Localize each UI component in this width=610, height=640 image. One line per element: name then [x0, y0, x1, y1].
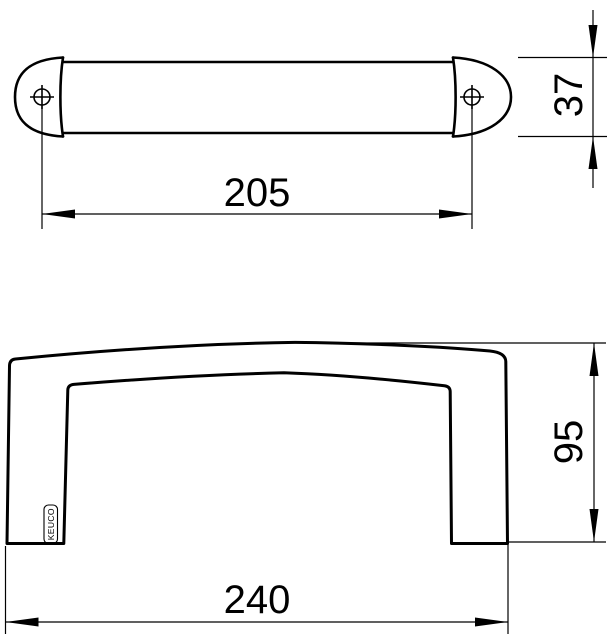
top-view: 205 37 [15, 10, 607, 229]
dimension-label-37: 37 [547, 73, 591, 118]
arrowhead-bottom [590, 509, 599, 542]
arrowhead-bottom [589, 137, 598, 170]
dimension-label-95: 95 [547, 420, 591, 465]
brand-logo: KEUCO [44, 505, 58, 544]
left-end-cap-flat-edge [60, 58, 63, 137]
handle-bar-outline [15, 58, 511, 137]
arrowhead-right [439, 210, 472, 219]
logo-text: KEUCO [46, 508, 56, 540]
arrowhead-left [6, 618, 39, 627]
right-end-cap-flat-edge [453, 58, 456, 137]
arrowhead-top [589, 25, 598, 58]
arrowhead-top [590, 343, 599, 376]
arrowhead-left [42, 210, 75, 219]
front-view: KEUCO 95 240 [6, 342, 607, 634]
technical-drawing-page: 205 37 KEUCO 95 [0, 0, 610, 640]
handle-profile-outline [7, 342, 508, 543]
dimension-label-205: 205 [224, 171, 291, 215]
dimension-label-240: 240 [224, 578, 291, 622]
arrowhead-right [475, 618, 508, 627]
handle-dimension-drawing: 205 37 KEUCO 95 [0, 0, 610, 640]
